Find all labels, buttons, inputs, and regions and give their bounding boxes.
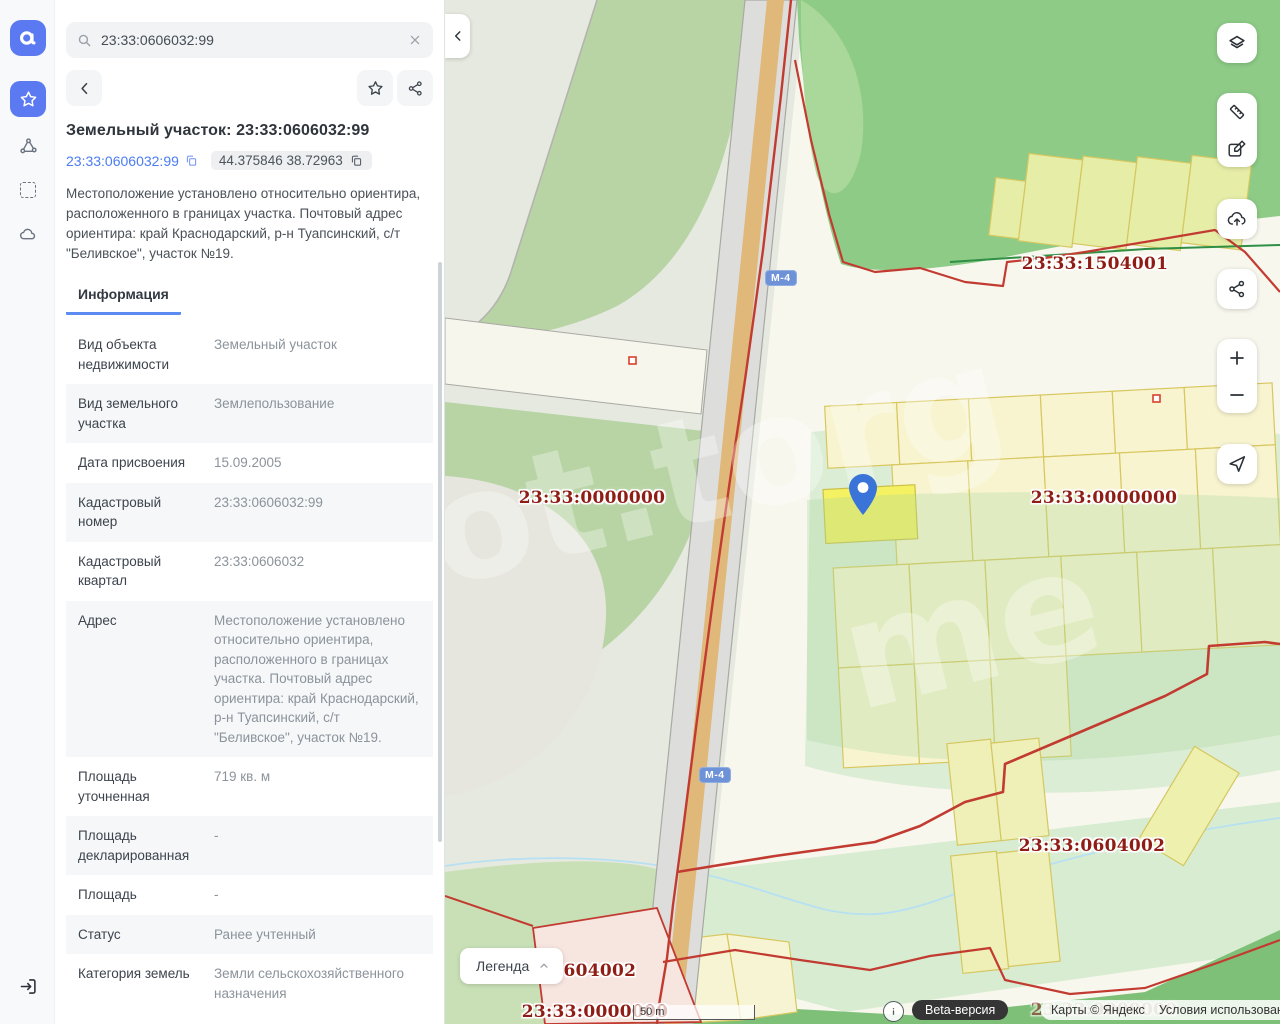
logo-a-icon <box>17 27 39 49</box>
star-icon <box>18 89 39 110</box>
legend-button[interactable]: Легенда <box>460 948 563 984</box>
row-value: 23:33:0606032 <box>214 552 421 591</box>
draw-button[interactable] <box>1217 130 1257 167</box>
share-icon <box>406 79 425 98</box>
row-value: - <box>214 826 421 865</box>
zoom-in-button[interactable] <box>1217 339 1257 376</box>
table-row: Вид объекта недвижимостиЗемельный участо… <box>66 325 433 384</box>
edit-icon <box>1226 138 1248 160</box>
share-icon <box>1226 278 1248 300</box>
minus-icon <box>1226 384 1248 406</box>
terms-link[interactable]: Условия использования <box>1159 1003 1280 1017</box>
back-button[interactable] <box>66 70 102 106</box>
select-area-icon <box>20 182 36 198</box>
row-value: 15.09.2005 <box>214 453 421 473</box>
cloud-upload-icon <box>1226 208 1248 230</box>
row-label: Площадь уточненная <box>78 767 202 806</box>
cadastral-quarter-label[interactable]: 23:33:0000000 <box>519 488 666 508</box>
row-label: Адрес <box>78 611 202 748</box>
cadastral-number-link[interactable]: 23:33:0606032:99 <box>66 153 179 169</box>
sidebar-item-polygon-tool[interactable] <box>10 128 46 164</box>
coordinates-value: 44.375846 38.72963 <box>219 153 343 168</box>
chevron-left-icon <box>75 79 94 98</box>
row-label: Вид земельного участка <box>78 394 202 433</box>
search-icon <box>76 32 93 49</box>
ruler-button[interactable] <box>1217 93 1257 130</box>
chevron-left-icon <box>451 29 465 43</box>
sidebar-item-select-area[interactable] <box>10 172 46 208</box>
tab-label: Информация <box>78 286 169 302</box>
upload-button[interactable] <box>1217 199 1257 239</box>
tab-bar: Информация <box>66 286 433 315</box>
app-window: Земельный участок: 23:33:0606032:99 23:3… <box>0 0 1280 1024</box>
info-icon <box>887 1005 900 1018</box>
row-value: Землепользование <box>214 394 421 433</box>
table-row: Категория земельЗемли сельскохозяйственн… <box>66 954 433 1013</box>
zoom-controls <box>1217 339 1257 413</box>
cadastral-quarter-label[interactable]: 23:33:1504001 <box>1022 254 1169 274</box>
cloud-icon <box>18 224 39 245</box>
clear-search-button[interactable] <box>407 32 423 48</box>
table-row: Кадастровый квартал23:33:0606032 <box>66 542 433 601</box>
identifier-chips: 23:33:0606032:99 44.375846 38.72963 <box>66 151 433 170</box>
map-attribution: Карты © Яндекс Условия использования <box>1041 1000 1280 1020</box>
row-value: 23:33:0606032:99 <box>214 493 421 532</box>
row-label: Дата присвоения <box>78 453 202 473</box>
chevron-up-icon <box>537 959 551 973</box>
row-value: Ранее учтенный <box>214 925 421 945</box>
row-label: Статус <box>78 925 202 945</box>
locate-button[interactable] <box>1217 444 1257 484</box>
copy-icon[interactable] <box>184 153 199 168</box>
share-map-button[interactable] <box>1217 269 1257 309</box>
info-panel: Земельный участок: 23:33:0606032:99 23:3… <box>55 0 445 1024</box>
plus-icon <box>1226 347 1248 369</box>
attribution-text[interactable]: Карты © Яндекс <box>1051 1003 1145 1017</box>
table-row: СтатусРанее учтенный <box>66 915 433 955</box>
beta-badge: Beta-версия <box>912 1000 1008 1020</box>
share-button[interactable] <box>397 70 433 106</box>
table-row: Площадь- <box>66 875 433 915</box>
row-label: Кадастровый квартал <box>78 552 202 591</box>
row-label: Площадь <box>78 885 202 905</box>
login-button[interactable] <box>10 968 46 1004</box>
scale-bar: 50 m <box>633 1005 755 1020</box>
row-label: Площадь декларированная <box>78 826 202 865</box>
info-table: Вид объекта недвижимостиЗемельный участо… <box>66 325 433 1013</box>
cadastral-quarter-label[interactable]: 23:33:0604002 <box>1019 836 1166 856</box>
table-row: Площадь декларированная- <box>66 816 433 875</box>
map-canvas[interactable]: ot.torg me 23:33:1504001 23:33:0000000 2… <box>445 0 1280 1024</box>
layers-button[interactable] <box>1217 23 1257 63</box>
location-description: Местоположение установлено относительно … <box>66 184 434 264</box>
tab-information[interactable]: Информация <box>66 286 181 315</box>
map-layers: ot.torg me <box>445 0 1280 1024</box>
row-value: Местоположение установлено относительно … <box>214 611 421 748</box>
sidebar-item-cloud[interactable] <box>10 216 46 252</box>
ruler-icon <box>1226 101 1248 123</box>
navigation-arrow-icon <box>1226 453 1248 475</box>
table-row: Кадастровый номер23:33:0606032:99 <box>66 483 433 542</box>
info-button[interactable] <box>883 1001 904 1022</box>
legend-label: Легенда <box>476 958 529 974</box>
table-row: АдресМестоположение установлено относите… <box>66 601 433 758</box>
star-icon <box>366 79 385 98</box>
table-row: Вид земельного участкаЗемлепользование <box>66 384 433 443</box>
point-marker-west[interactable] <box>629 357 636 364</box>
row-value: 719 кв. м <box>214 767 421 806</box>
road-badge-m4: М-4 <box>699 767 731 783</box>
icon-rail <box>0 0 55 1024</box>
copy-icon[interactable] <box>349 153 364 168</box>
cadastral-quarter-label[interactable]: 23:33:0000000 <box>1031 488 1178 508</box>
row-value: - <box>214 885 421 905</box>
coordinates-chip: 44.375846 38.72963 <box>211 151 372 170</box>
app-logo[interactable] <box>10 20 46 56</box>
sidebar-item-favorites[interactable] <box>10 81 46 117</box>
measure-tools-group <box>1217 93 1257 167</box>
layers-icon <box>1226 32 1248 54</box>
search-input[interactable] <box>101 32 399 48</box>
search-bar <box>66 22 433 58</box>
polygon-icon <box>18 136 39 157</box>
collapse-panel-button[interactable] <box>445 14 470 58</box>
panel-toolbar <box>66 70 433 106</box>
road-badge-m4: М-4 <box>765 270 797 286</box>
panel-scrollbar[interactable] <box>438 262 442 842</box>
page-title: Земельный участок: 23:33:0606032:99 <box>66 122 433 140</box>
table-row: Дата присвоения15.09.2005 <box>66 443 433 483</box>
row-value: Земли сельскохозяйственного назначения <box>214 964 421 1003</box>
row-label: Кадастровый номер <box>78 493 202 532</box>
row-label: Категория земель <box>78 964 202 1003</box>
favorite-button[interactable] <box>357 70 393 106</box>
row-label: Вид объекта недвижимости <box>78 335 202 374</box>
login-icon <box>18 976 39 997</box>
row-value: Земельный участок <box>214 335 421 374</box>
table-row: Площадь уточненная719 кв. м <box>66 757 433 816</box>
point-marker-east[interactable] <box>1153 395 1160 402</box>
close-icon <box>407 32 423 48</box>
zoom-out-button[interactable] <box>1217 376 1257 413</box>
